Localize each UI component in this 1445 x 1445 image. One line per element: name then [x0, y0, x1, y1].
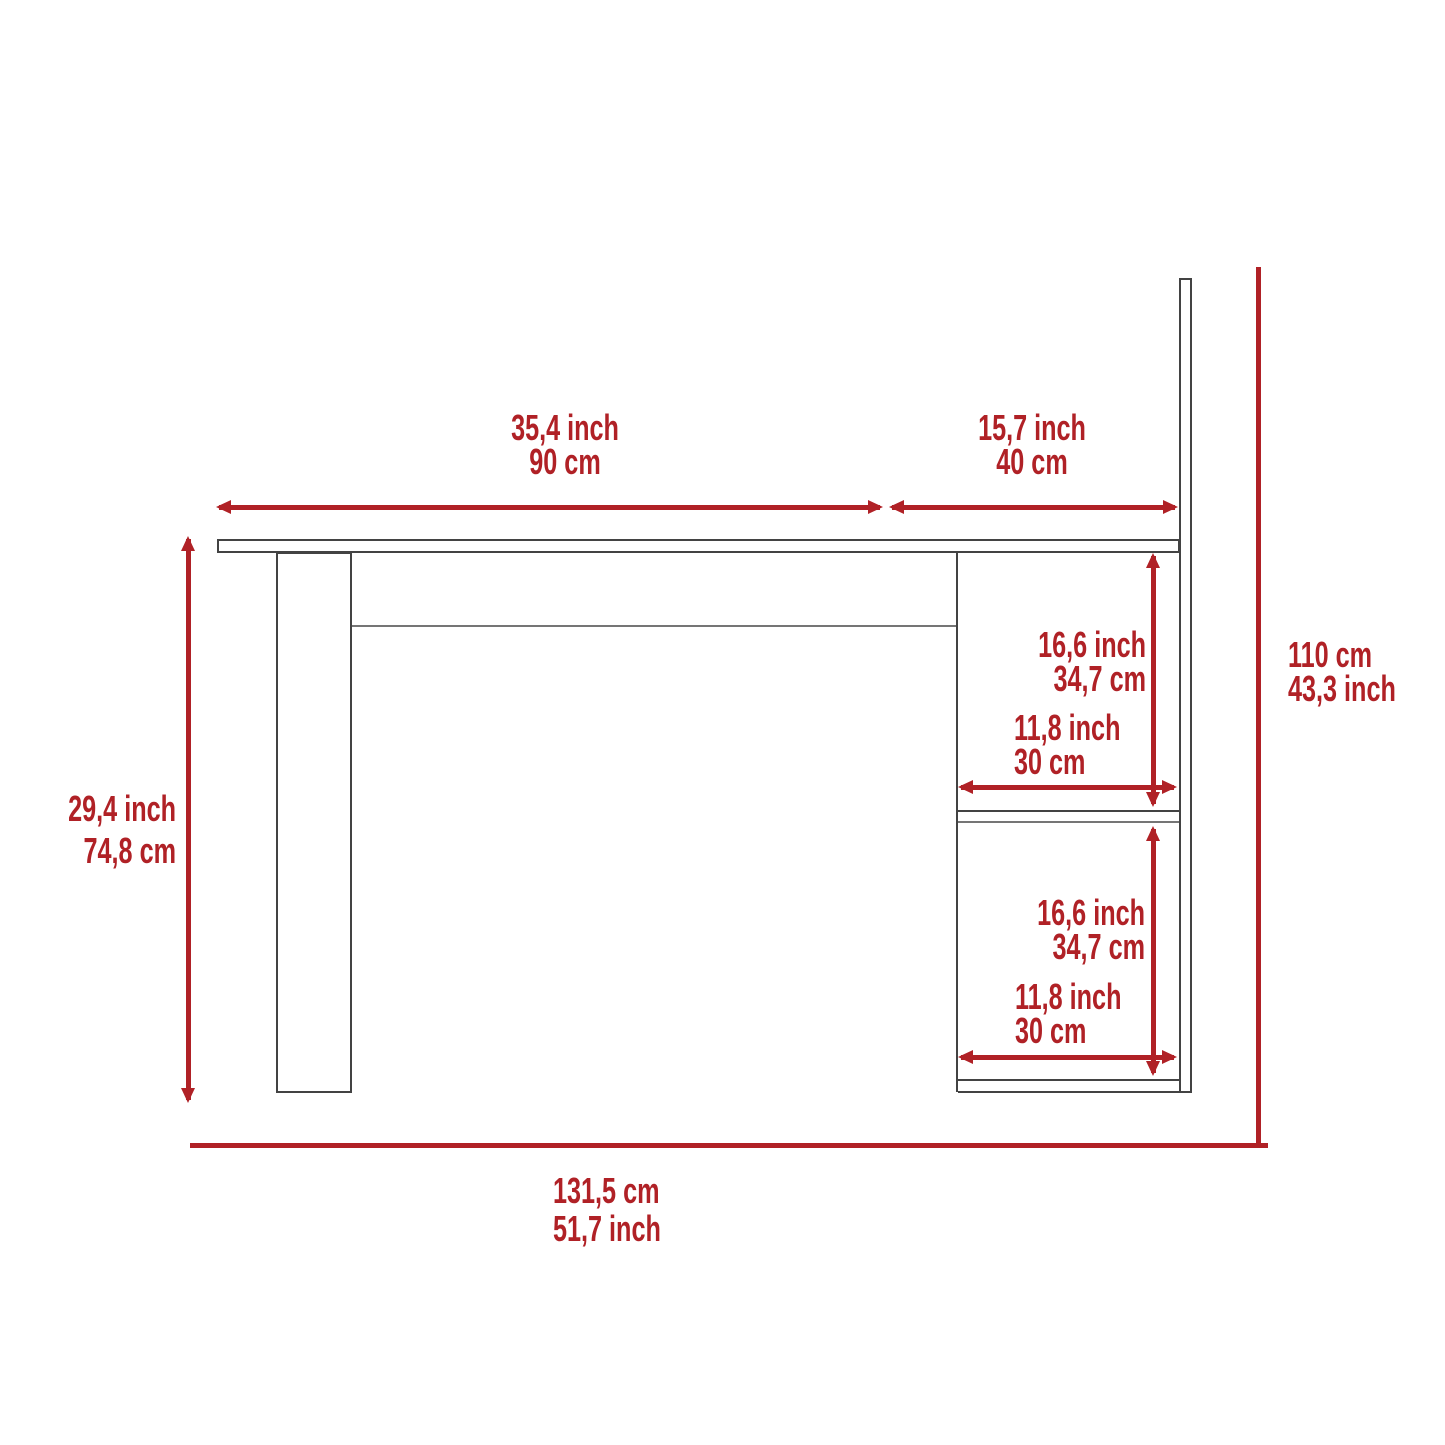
label-hutch-depth: 15,7 inch 40 cm [882, 411, 1182, 479]
lower-shelf-depth-arrow [958, 1050, 1177, 1064]
label-lower-shelf-height-cm: 34,7 cm [935, 930, 1145, 964]
label-total-width: 131,5 cm 51,7 inch [553, 1172, 853, 1248]
label-lower-shelf-height: 16,6 inch 34,7 cm [845, 896, 1145, 964]
label-upper-shelf-height: 16,6 inch 34,7 cm [846, 628, 1146, 696]
label-total-height: 110 cm 43,3 inch [1288, 638, 1445, 706]
label-total-height-cm: 110 cm [1288, 638, 1445, 672]
middle-shelf-board [958, 810, 1179, 823]
label-hutch-depth-cm: 40 cm [927, 445, 1137, 479]
apron-edge-line [352, 625, 957, 627]
desktop-panel [217, 539, 1180, 553]
label-total-height-inch: 43,3 inch [1288, 672, 1445, 706]
label-upper-shelf-depth: 11,8 inch 30 cm [1014, 711, 1314, 779]
dimension-diagram: 35,4 inch 90 cm 15,7 inch 40 cm 110 cm 4… [0, 0, 1445, 1445]
bottom-shelf-board [958, 1079, 1179, 1093]
label-total-width-inch: 51,7 inch [553, 1210, 763, 1248]
label-upper-shelf-height-inch: 16,6 inch [936, 628, 1146, 662]
label-hutch-depth-inch: 15,7 inch [927, 411, 1137, 445]
label-desk-height-inch: 29,4 inch [53, 788, 176, 830]
label-upper-shelf-height-cm: 34,7 cm [936, 662, 1146, 696]
label-desktop-width-cm: 90 cm [460, 445, 670, 479]
label-upper-shelf-depth-inch: 11,8 inch [1014, 711, 1224, 745]
label-upper-shelf-depth-cm: 30 cm [1014, 745, 1224, 779]
label-desktop-width-inch: 35,4 inch [460, 411, 670, 445]
label-total-width-cm: 131,5 cm [553, 1172, 763, 1210]
total-width-dimension-line [190, 1143, 1268, 1148]
label-desktop-width: 35,4 inch 90 cm [415, 411, 715, 479]
label-desk-height: 29,4 inch 74,8 cm [0, 788, 176, 872]
desktop-width-arrow [216, 500, 883, 514]
back-panel [1179, 278, 1192, 1093]
label-desk-height-cm: 74,8 cm [53, 830, 176, 872]
label-lower-shelf-depth-cm: 30 cm [1015, 1014, 1225, 1048]
upper-shelf-depth-arrow [958, 780, 1177, 794]
hutch-depth-arrow [889, 500, 1178, 514]
label-lower-shelf-height-inch: 16,6 inch [935, 896, 1145, 930]
label-lower-shelf-depth: 11,8 inch 30 cm [1015, 980, 1315, 1048]
desk-height-arrow [181, 536, 195, 1103]
label-lower-shelf-depth-inch: 11,8 inch [1015, 980, 1225, 1014]
left-leg-panel [276, 552, 352, 1093]
